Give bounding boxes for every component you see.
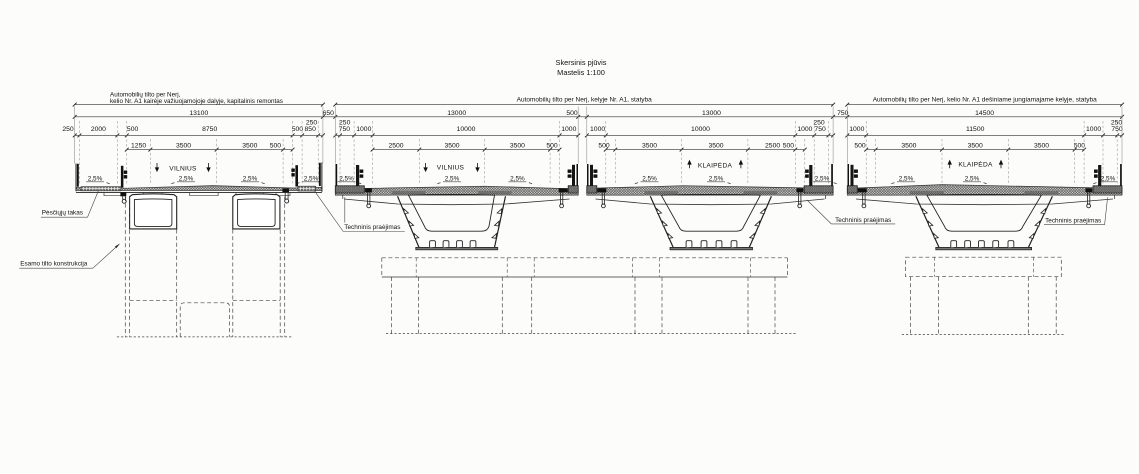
svg-text:Mastelis 1:100: Mastelis 1:100 (557, 68, 605, 77)
svg-text:VILNIUS: VILNIUS (437, 165, 465, 172)
svg-text:3500: 3500 (176, 142, 191, 149)
svg-text:250: 250 (62, 126, 74, 133)
svg-text:750: 750 (837, 110, 849, 117)
svg-text:3500: 3500 (708, 142, 723, 149)
svg-text:1000: 1000 (849, 126, 864, 133)
svg-text:Pėsčiųjų takas: Pėsčiųjų takas (42, 210, 83, 217)
svg-text:1000: 1000 (1086, 126, 1101, 133)
svg-text:14500: 14500 (975, 110, 994, 117)
svg-text:Skersinis pjūvis: Skersinis pjūvis (556, 58, 607, 67)
svg-text:500: 500 (127, 126, 139, 133)
svg-text:500: 500 (854, 142, 866, 149)
svg-text:KLAIPĖDA: KLAIPĖDA (958, 160, 993, 169)
svg-text:1250: 1250 (131, 142, 146, 149)
svg-text:10000: 10000 (457, 126, 476, 133)
svg-text:3500: 3500 (510, 142, 525, 149)
svg-text:13000: 13000 (447, 110, 466, 117)
svg-text:750: 750 (339, 126, 351, 133)
svg-text:500: 500 (783, 142, 795, 149)
svg-text:650: 650 (323, 110, 335, 117)
svg-text:Techninis praėjimas: Techninis praėjimas (835, 217, 891, 224)
svg-text:Automobilių tilto per Nerį, ke: Automobilių tilto per Nerį, kelio Nr. A1… (873, 96, 1097, 103)
svg-text:1000: 1000 (590, 126, 605, 133)
svg-text:750: 750 (814, 126, 826, 133)
svg-text:13000: 13000 (702, 110, 721, 117)
svg-text:Techninis praėjimas: Techninis praėjimas (344, 224, 400, 231)
svg-text:10000: 10000 (691, 126, 710, 133)
svg-text:3500: 3500 (968, 142, 983, 149)
svg-text:500: 500 (1074, 142, 1086, 149)
svg-text:2500: 2500 (765, 142, 780, 149)
svg-text:Automobilių tilto per Nerį, ke: Automobilių tilto per Nerį, kelyje Nr. A… (517, 96, 653, 103)
svg-text:1000: 1000 (797, 126, 812, 133)
svg-text:3500: 3500 (901, 142, 916, 149)
svg-text:3500: 3500 (1034, 142, 1049, 149)
svg-text:KLAIPĖDA: KLAIPĖDA (698, 160, 733, 169)
svg-text:500: 500 (270, 142, 282, 149)
svg-text:kelio Nr. A1 kairėje važiuojam: kelio Nr. A1 kairėje važiuojamojoje daly… (110, 98, 283, 105)
svg-text:3500: 3500 (444, 142, 459, 149)
svg-text:2000: 2000 (91, 126, 106, 133)
svg-text:500: 500 (292, 126, 304, 133)
svg-text:850: 850 (305, 126, 317, 133)
svg-text:Techninis praėjimas: Techninis praėjimas (1045, 217, 1101, 224)
svg-text:2500: 2500 (388, 142, 403, 149)
svg-text:500: 500 (598, 142, 610, 149)
svg-text:8750: 8750 (202, 126, 217, 133)
svg-text:500: 500 (546, 142, 558, 149)
svg-text:3500: 3500 (242, 142, 257, 149)
svg-text:11500: 11500 (966, 126, 985, 133)
svg-text:3500: 3500 (642, 142, 657, 149)
svg-text:Esamo tilto konstrukcija: Esamo tilto konstrukcija (20, 261, 88, 268)
svg-text:13100: 13100 (189, 110, 208, 117)
svg-text:500: 500 (566, 110, 578, 117)
svg-text:VILNIUS: VILNIUS (169, 165, 197, 172)
svg-text:1000: 1000 (561, 126, 576, 133)
svg-text:1000: 1000 (356, 126, 371, 133)
